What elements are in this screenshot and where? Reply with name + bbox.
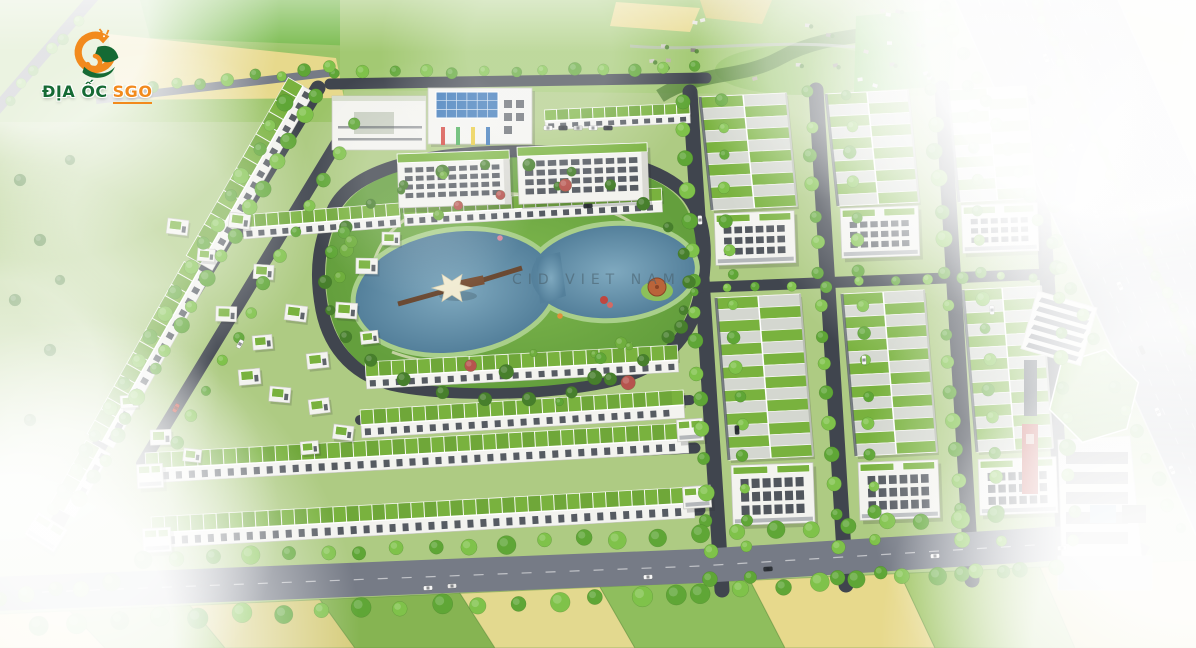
aerial-masterplan-render: CID VIET NAM ĐỊA ỐCSGO — [0, 0, 1196, 648]
logo-wordmark: ĐỊA ỐCSGO — [42, 82, 152, 101]
developer-logo: ĐỊA ỐCSGO — [36, 24, 206, 110]
dragon-logo-icon — [68, 28, 122, 84]
watermark-text: CID VIET NAM — [512, 272, 681, 288]
logo-text-orange: SGO — [113, 82, 153, 104]
logo-text-green: ĐỊA ỐC — [42, 82, 108, 101]
